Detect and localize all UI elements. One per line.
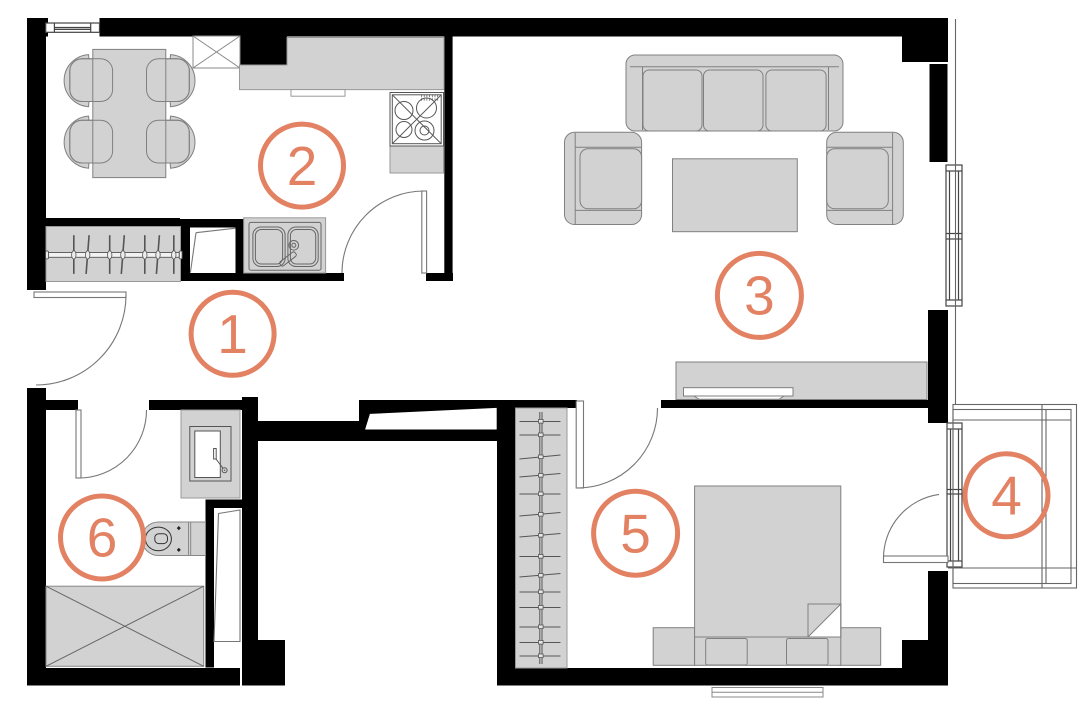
svg-text:2: 2: [287, 135, 318, 197]
svg-text:6: 6: [87, 507, 118, 569]
svg-text:1: 1: [217, 303, 248, 365]
svg-text:5: 5: [620, 502, 651, 564]
svg-text:3: 3: [744, 265, 775, 327]
svg-text:4: 4: [991, 465, 1022, 527]
